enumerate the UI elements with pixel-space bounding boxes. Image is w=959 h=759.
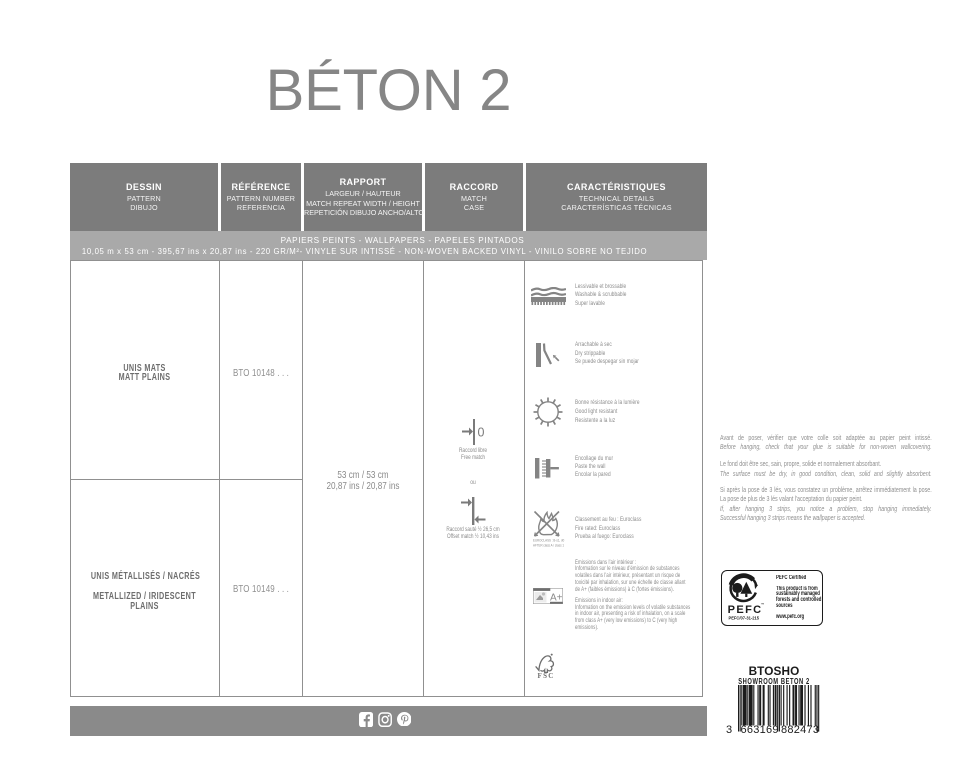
svg-text:0: 0: [478, 426, 485, 440]
svg-text:AFTER class A / class 1: AFTER class A / class 1: [533, 543, 564, 548]
svg-text:FSC: FSC: [538, 672, 555, 679]
svg-text:PEFC/07-31-215: PEFC/07-31-215: [729, 615, 760, 620]
svg-text:EUROCLASS : B-s1, d0: EUROCLASS : B-s1, d0: [533, 538, 564, 543]
svg-text:™: ™: [761, 603, 765, 607]
